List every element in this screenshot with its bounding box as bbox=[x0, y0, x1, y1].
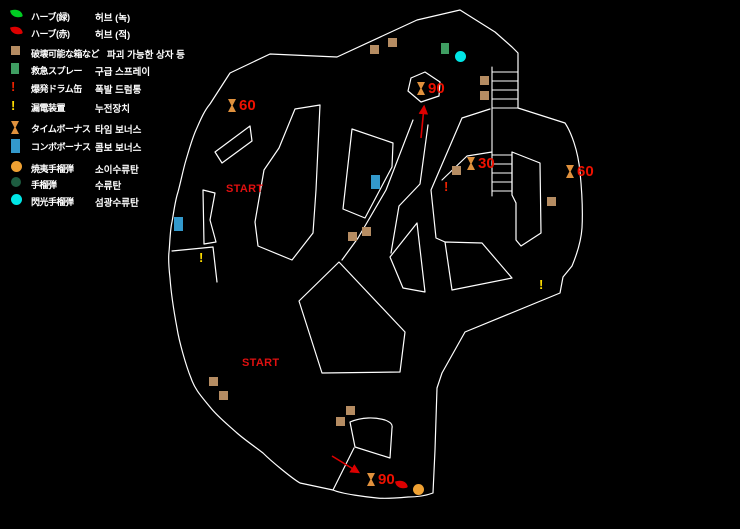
box-icon bbox=[388, 38, 397, 47]
time-bonus-value: 30 bbox=[478, 157, 495, 170]
box-icon bbox=[480, 91, 489, 100]
time-bonus-value: 90 bbox=[378, 473, 395, 486]
time-bonus-icon bbox=[417, 82, 425, 95]
time-bonus: 90 bbox=[367, 473, 395, 486]
time-bonus-icon bbox=[367, 473, 375, 486]
time-bonus-icon bbox=[566, 165, 574, 178]
map-items: !!!6090306090STARTSTART bbox=[0, 0, 740, 529]
combo-icon bbox=[174, 217, 183, 231]
time-bonus: 90 bbox=[417, 82, 445, 95]
time-bonus: 60 bbox=[566, 165, 594, 178]
time-bonus: 30 bbox=[467, 157, 495, 170]
box-icon bbox=[219, 391, 228, 400]
box-icon bbox=[348, 232, 357, 241]
leak-icon: ! bbox=[539, 279, 543, 290]
time-bonus-icon bbox=[228, 99, 236, 112]
fire-icon bbox=[413, 484, 424, 495]
time-bonus-icon bbox=[467, 157, 475, 170]
drum-icon: ! bbox=[444, 181, 448, 192]
box-icon bbox=[480, 76, 489, 85]
spray-icon bbox=[441, 43, 449, 54]
box-icon bbox=[370, 45, 379, 54]
start-label: START bbox=[242, 357, 279, 369]
time-bonus-value: 60 bbox=[577, 165, 594, 178]
start-label: START bbox=[226, 183, 263, 195]
time-bonus-value: 90 bbox=[428, 82, 445, 95]
flash-icon bbox=[455, 51, 466, 62]
leak-icon: ! bbox=[199, 252, 203, 263]
box-icon bbox=[362, 227, 371, 236]
box-icon bbox=[336, 417, 345, 426]
box-icon bbox=[452, 166, 461, 175]
time-bonus: 60 bbox=[228, 99, 256, 112]
herb-red-icon bbox=[395, 479, 408, 491]
box-icon bbox=[547, 197, 556, 206]
box-icon bbox=[346, 406, 355, 415]
time-bonus-value: 60 bbox=[239, 99, 256, 112]
game-map-screen: ハーブ(緑)허브 (녹)ハーブ(赤)허브 (적)破壊可能な箱など파괴 가능한 상… bbox=[0, 0, 740, 529]
combo-icon bbox=[371, 175, 380, 189]
box-icon bbox=[209, 377, 218, 386]
